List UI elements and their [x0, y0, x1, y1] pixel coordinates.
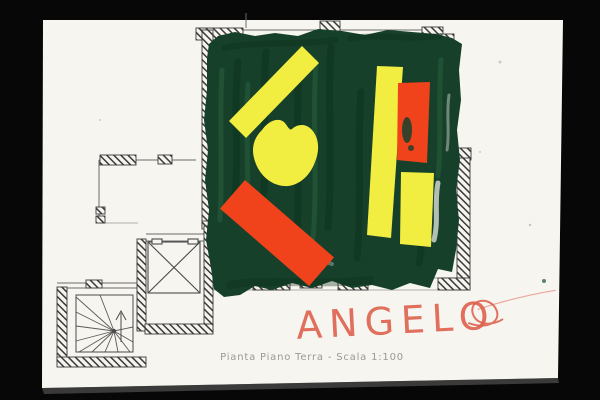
artwork-scene: ANGELO Pianta Piano Terra - Scala 1:100 — [0, 0, 600, 400]
wall-segment — [96, 207, 105, 214]
wall-segment — [438, 278, 470, 290]
dust-speck — [99, 119, 101, 121]
dust-speck — [479, 151, 481, 153]
orange-rectangle — [397, 82, 430, 163]
wall-segment — [145, 324, 213, 334]
painting — [204, 29, 462, 297]
wall-segment — [100, 155, 136, 165]
wall-segment — [96, 216, 105, 223]
stair-hub — [112, 329, 115, 332]
wall-segment — [57, 287, 67, 363]
dust-speck — [529, 224, 531, 226]
elevator-door-tab — [188, 239, 198, 244]
wall-segment — [86, 280, 102, 288]
green-smudge-dot — [408, 145, 414, 151]
green-speck — [542, 279, 546, 283]
wall-segment — [158, 155, 172, 164]
elevator-door-tab — [152, 239, 162, 244]
wall-segment — [57, 357, 146, 367]
wall-segment — [137, 239, 146, 331]
yellow-short-bar — [400, 172, 434, 247]
caption-text: Pianta Piano Terra - Scala 1:100 — [220, 352, 404, 363]
photo-of-artwork: ANGELO Pianta Piano Terra - Scala 1:100 — [0, 0, 600, 400]
green-smudge-on-orange — [402, 117, 412, 143]
dust-speck — [499, 61, 502, 64]
wall-segment — [457, 158, 470, 290]
